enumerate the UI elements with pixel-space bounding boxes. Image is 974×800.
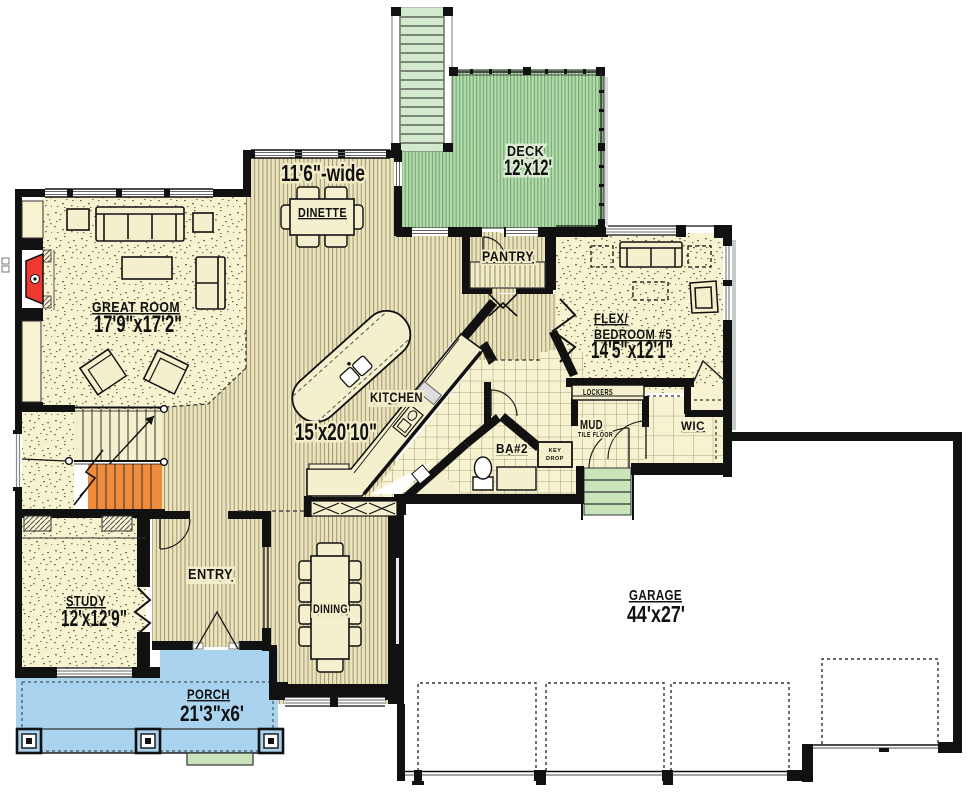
svg-text:ENTRY: ENTRY [188, 566, 233, 583]
svg-text:12'x12': 12'x12' [504, 155, 552, 180]
svg-text:15'x20'10": 15'x20'10" [295, 419, 377, 446]
svg-text:DINETTE: DINETTE [298, 205, 347, 220]
svg-text:PANTRY: PANTRY [482, 248, 534, 264]
svg-text:FLEX/: FLEX/ [594, 310, 628, 326]
svg-text:WIC: WIC [681, 419, 705, 433]
svg-text:PORCH: PORCH [187, 686, 230, 702]
svg-text:MUD: MUD [580, 417, 603, 432]
svg-text:TILE FLOOR: TILE FLOOR [578, 432, 613, 439]
svg-text:DROP: DROP [546, 456, 564, 462]
svg-text:KEY: KEY [549, 448, 562, 454]
svg-text:17'9"x17'2": 17'9"x17'2" [94, 311, 182, 338]
svg-text:12'x12'9": 12'x12'9" [61, 605, 127, 631]
svg-text:44'x27': 44'x27' [627, 601, 685, 627]
svg-text:11'6"-wide: 11'6"-wide [281, 160, 365, 186]
svg-text:LOCKERS: LOCKERS [583, 387, 613, 397]
svg-text:DINING: DINING [313, 602, 348, 616]
svg-text:21'3"x6': 21'3"x6' [180, 701, 244, 726]
svg-text:14'5"x12'1": 14'5"x12'1" [591, 337, 673, 364]
svg-text:BA#2: BA#2 [496, 441, 528, 456]
svg-text:KITCHEN: KITCHEN [370, 389, 423, 405]
